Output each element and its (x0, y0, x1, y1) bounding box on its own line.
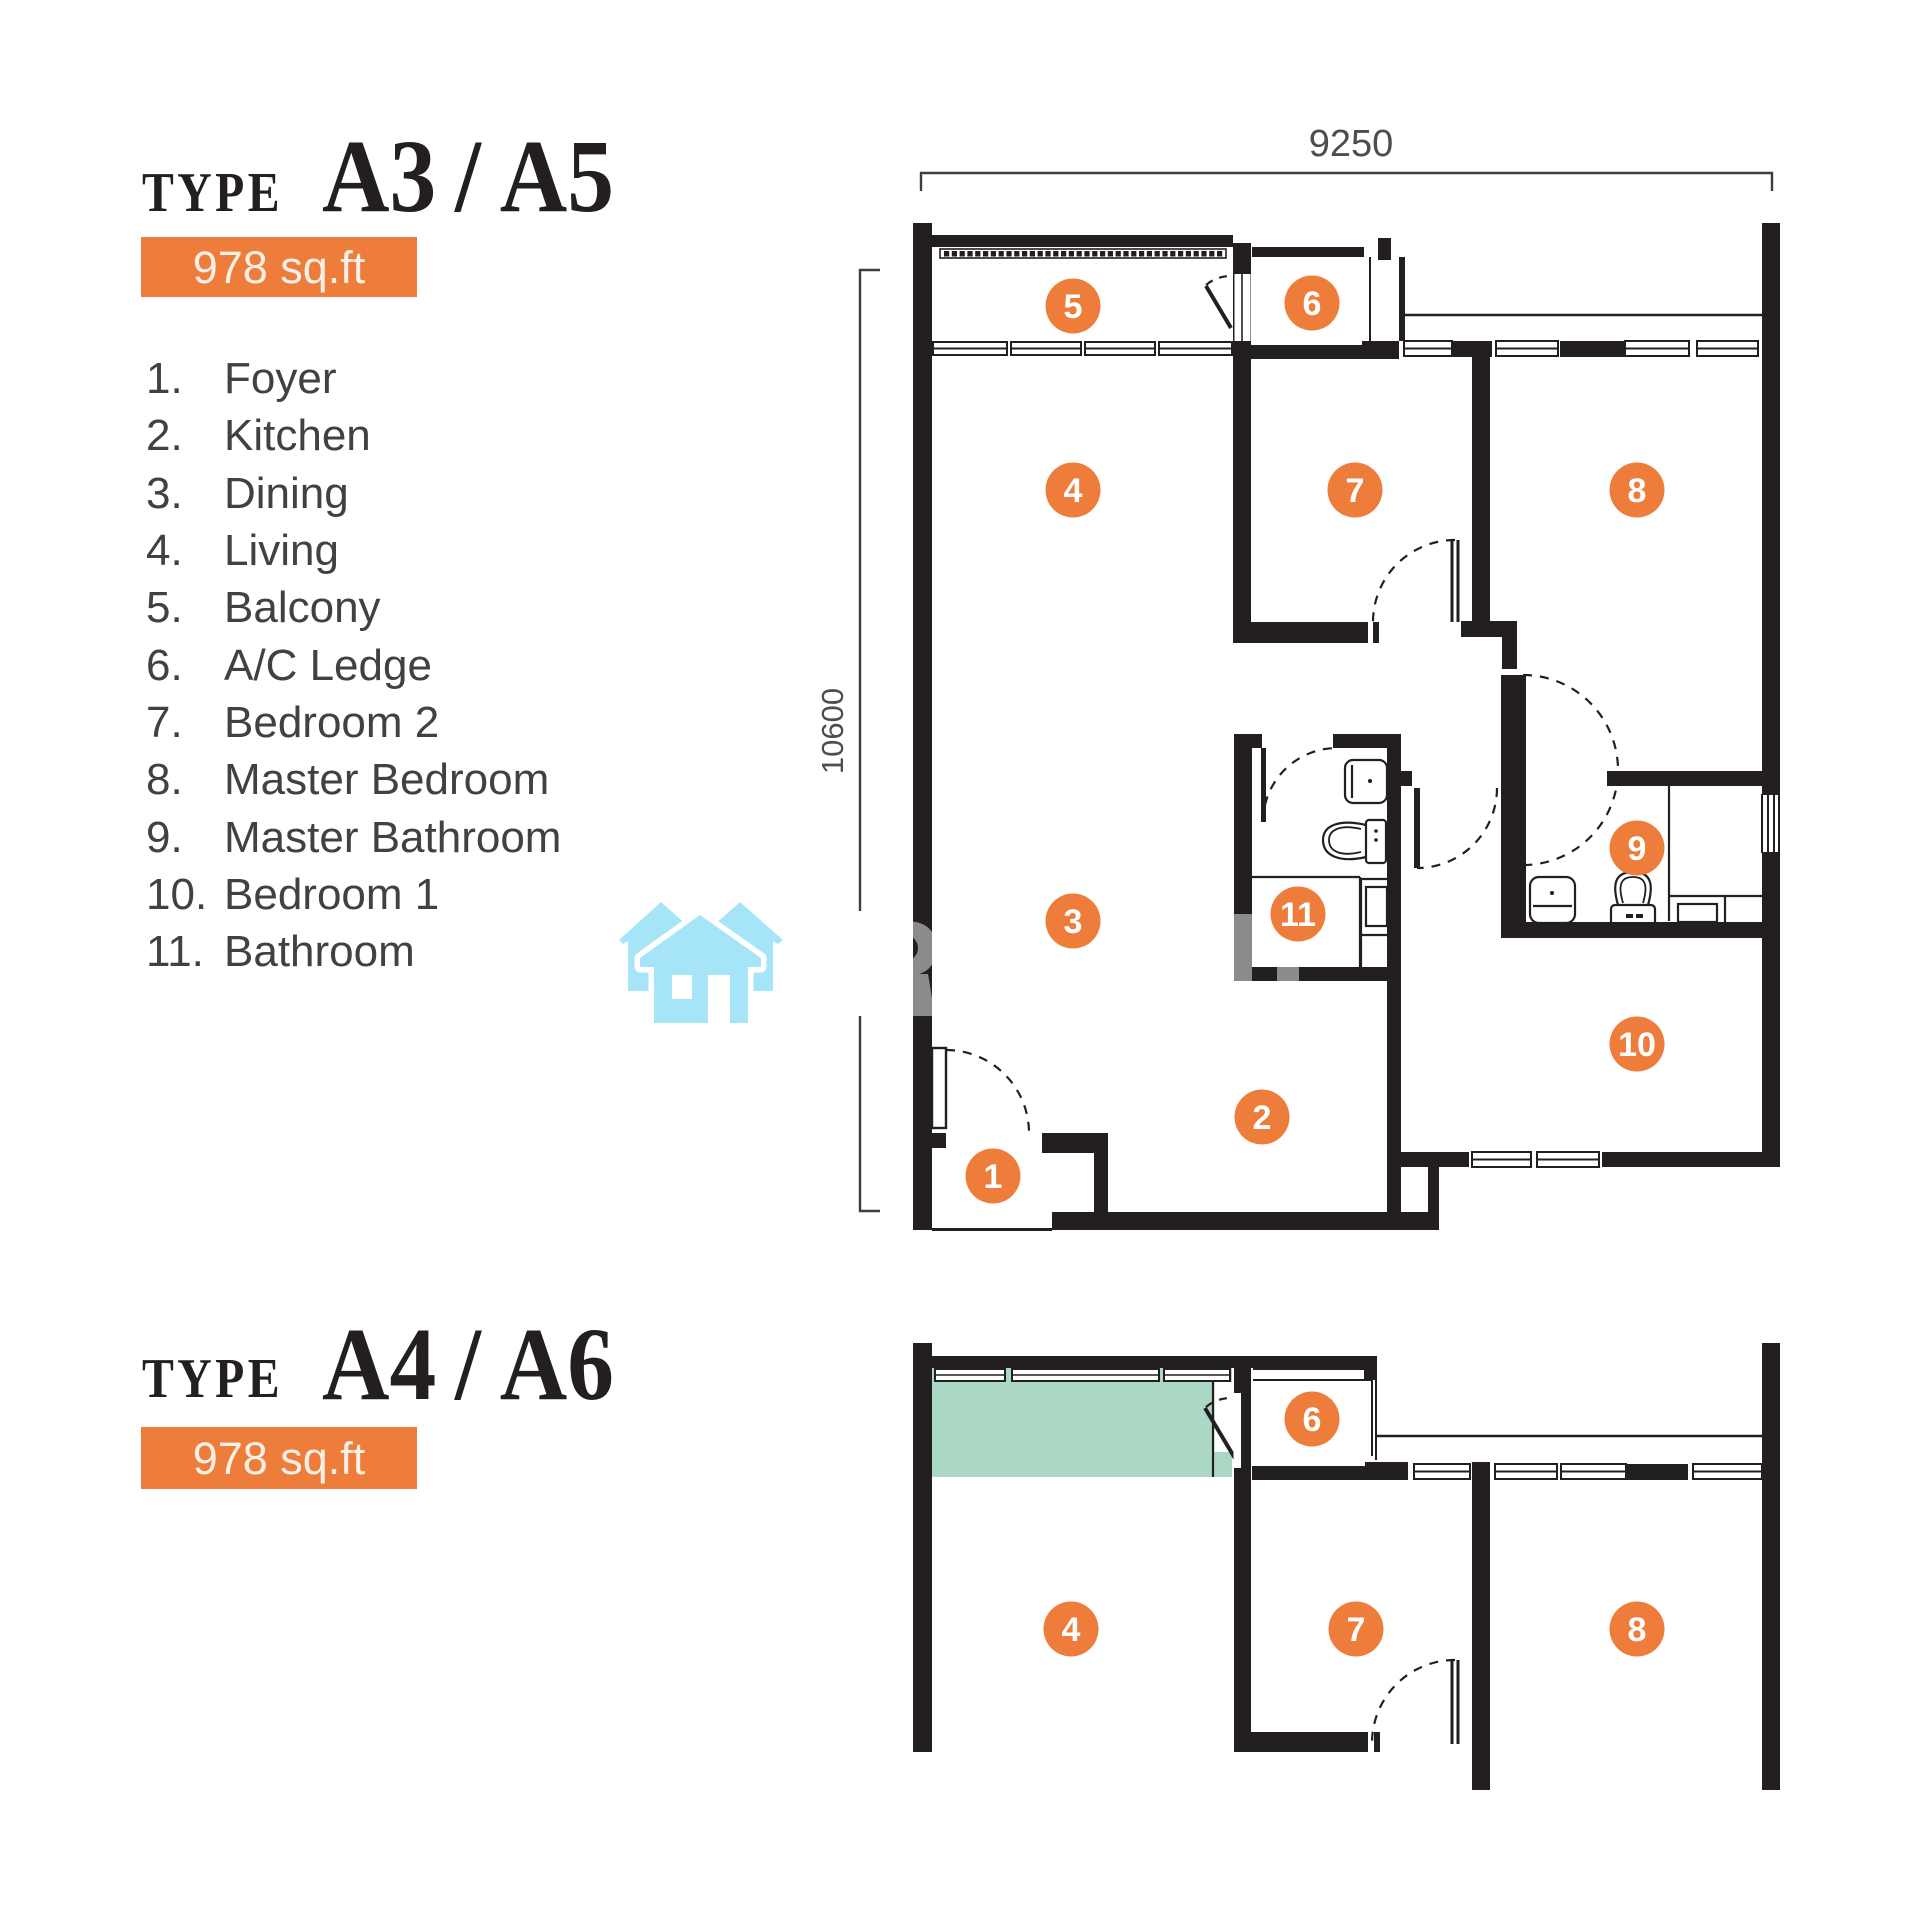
svg-text:978 sq.ft: 978 sq.ft (193, 1433, 366, 1484)
svg-text:5.: 5. (146, 583, 183, 632)
svg-text:1.: 1. (146, 354, 183, 403)
svg-text:Dining: Dining (224, 469, 349, 518)
svg-text:10.: 10. (146, 870, 207, 919)
svg-text:Balcony: Balcony (224, 583, 381, 632)
svg-text:7: 7 (1347, 1611, 1366, 1649)
svg-text:3: 3 (1064, 903, 1083, 941)
svg-text:8: 8 (1628, 472, 1647, 510)
svg-text:Living: Living (224, 526, 339, 575)
svg-text:Bedroom 1: Bedroom 1 (224, 870, 439, 919)
svg-text:8: 8 (1628, 1611, 1647, 1649)
svg-text:6.: 6. (146, 641, 183, 690)
svg-text:Foyer: Foyer (224, 354, 336, 403)
svg-text:1: 1 (984, 1158, 1003, 1196)
svg-text:8.: 8. (146, 755, 183, 804)
svg-text:5: 5 (1064, 288, 1083, 326)
svg-text:9.: 9. (146, 813, 183, 862)
svg-text:4: 4 (1062, 1611, 1081, 1649)
svg-text:9: 9 (1628, 830, 1647, 868)
svg-text:4: 4 (1064, 472, 1083, 510)
svg-text:10600: 10600 (815, 688, 850, 774)
svg-text:4.: 4. (146, 526, 183, 575)
svg-text:Bedroom 2: Bedroom 2 (224, 698, 439, 747)
svg-text:6: 6 (1303, 285, 1322, 323)
svg-text:TYPE: TYPE (142, 162, 283, 224)
svg-text:978 sq.ft: 978 sq.ft (193, 242, 366, 293)
svg-text:11: 11 (1280, 896, 1316, 934)
svg-text:7: 7 (1346, 472, 1365, 510)
svg-text:10: 10 (1618, 1026, 1656, 1064)
svg-text:A3 / A5: A3 / A5 (322, 119, 614, 234)
svg-text:2: 2 (1253, 1099, 1272, 1137)
svg-text:Kitchen: Kitchen (224, 411, 371, 460)
svg-text:TYPE: TYPE (142, 1348, 283, 1410)
svg-text:7.: 7. (146, 698, 183, 747)
svg-text:Master Bathroom: Master Bathroom (224, 813, 561, 862)
svg-text:6: 6 (1303, 1401, 1322, 1439)
svg-text:9250: 9250 (1309, 123, 1394, 165)
svg-text:Bathroom: Bathroom (224, 927, 415, 976)
svg-text:Master Bedroom: Master Bedroom (224, 755, 549, 804)
svg-text:A/C Ledge: A/C Ledge (224, 641, 432, 690)
svg-text:2.: 2. (146, 411, 183, 460)
svg-text:3.: 3. (146, 469, 183, 518)
svg-text:11.: 11. (146, 927, 204, 976)
svg-text:A4 / A6: A4 / A6 (322, 1307, 614, 1422)
